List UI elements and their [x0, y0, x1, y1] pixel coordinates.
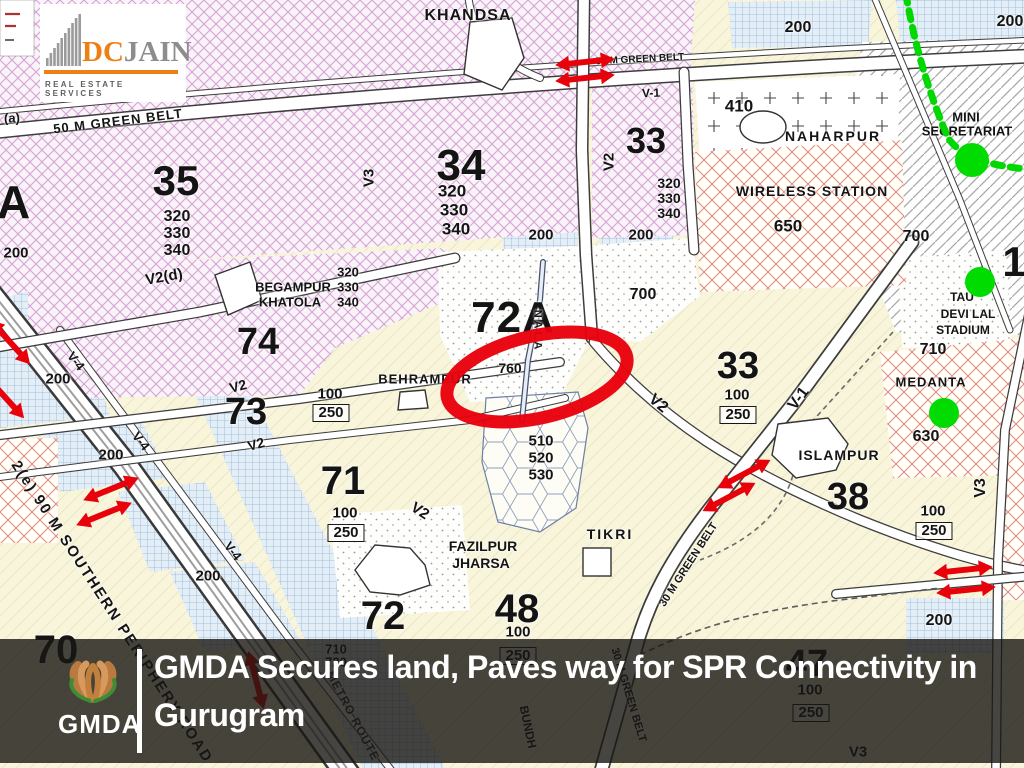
dcjain-dc: DC: [82, 36, 124, 68]
headline-divider: [137, 649, 142, 753]
highlight-oval: [438, 316, 636, 437]
gmda-hands-icon: [58, 651, 128, 707]
headline-line1: GMDA Secures land, Paves way for SPR Con…: [154, 651, 977, 683]
news-graphic: KHANDSA NAHARPUR WIRELESS STATION MINI S…: [0, 0, 1024, 768]
dcjain-tagline: REAL ESTATE SERVICES: [45, 80, 186, 98]
dcjain-orange-rule: [44, 70, 178, 74]
headline-line2: Gurugram: [154, 699, 305, 731]
dcjain-jain: JAIN: [124, 36, 192, 68]
dcjain-logo: DCJAIN REAL ESTATE SERVICES: [40, 4, 186, 102]
dcjain-wordmark: DCJAIN: [82, 38, 192, 67]
gmda-wordmark: GMDA: [58, 709, 134, 740]
crossing-arrow-markers: [0, 51, 997, 711]
headline-bar: GMDA GMDA Secures land, Paves way for SP…: [0, 639, 1024, 763]
metro-route-line: [906, 0, 1024, 170]
metro-station-markers: [929, 143, 995, 428]
